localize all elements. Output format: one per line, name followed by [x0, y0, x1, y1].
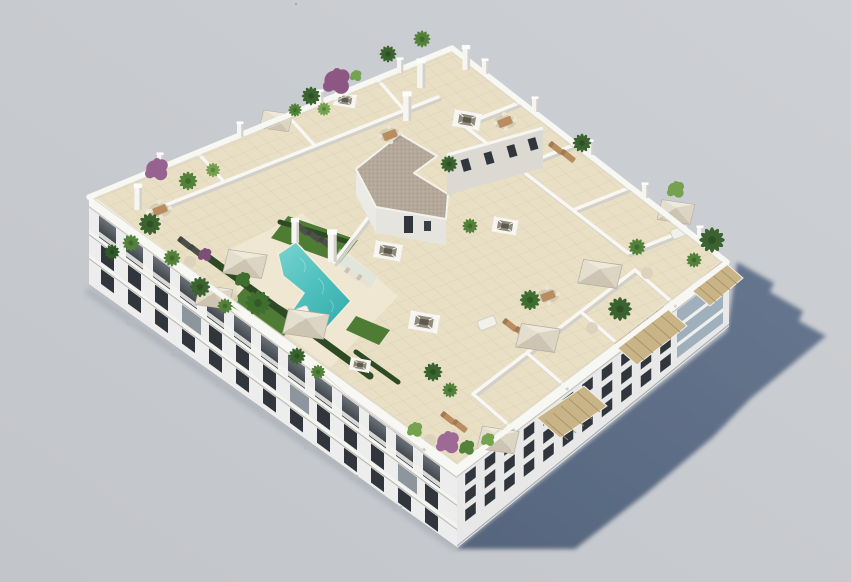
core-door	[404, 216, 413, 233]
dust-speck	[295, 3, 297, 5]
render-canvas	[0, 0, 851, 582]
render-viewport	[0, 0, 851, 582]
